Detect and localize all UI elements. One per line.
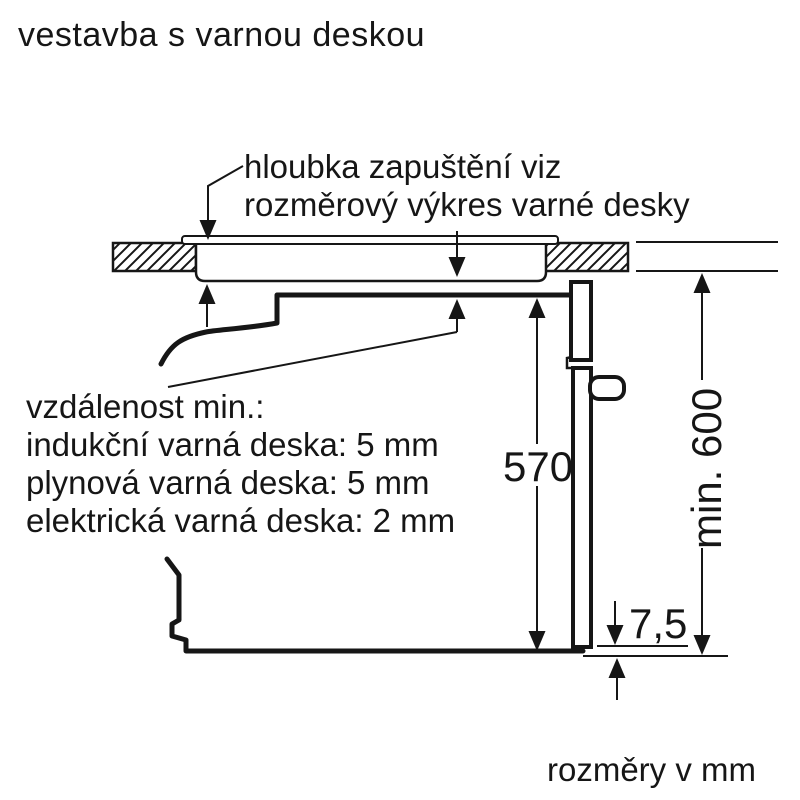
- countertop-left-section: [113, 243, 196, 271]
- hob-recess-note-line2: rozměrový výkres varné desky: [244, 186, 690, 224]
- arrow-down-570: [529, 631, 546, 651]
- leader-clearance-note: [168, 332, 457, 387]
- arrow-up-570: [529, 298, 546, 318]
- oven-bottom-outline: [167, 559, 583, 651]
- hob-recess-note-line1: hloubka zapuštění viz: [244, 148, 690, 186]
- oven-control-knob-icon: [590, 377, 624, 399]
- hob-top-frame: [182, 236, 558, 244]
- hob-recess-note: hloubka zapuštění viz rozměrový výkres v…: [244, 148, 690, 224]
- arrow-up-oven-top: [449, 299, 466, 319]
- arrow-down-75: [607, 625, 624, 645]
- hob-body: [196, 243, 546, 281]
- clearance-note-electric: elektrická varná deska: 2 mm: [26, 502, 455, 540]
- clearance-note-gas: plynová varná deska: 5 mm: [26, 464, 455, 502]
- clearance-note-induction: indukční varná deska: 5 mm: [26, 426, 455, 464]
- dimension-niche-height: min. 600: [683, 388, 731, 549]
- dimension-door-gap: 7,5: [629, 600, 687, 648]
- units-note: rozměry v mm: [547, 751, 756, 789]
- clearance-note: vzdálenost min.: indukční varná deska: 5…: [26, 388, 455, 540]
- leader-hob-note: [208, 166, 243, 222]
- installation-diagram-page: vestavba s varnou deskou hloubka zapuště…: [0, 0, 800, 800]
- oven-door: [573, 368, 591, 647]
- dimension-oven-height: 570: [503, 443, 573, 491]
- oven-top-outline: [161, 295, 571, 364]
- arrow-down-600: [694, 635, 711, 655]
- countertop-right-extension: [636, 242, 778, 271]
- page-title: vestavba s varnou deskou: [18, 16, 425, 55]
- arrow-up-75: [609, 658, 626, 678]
- arrow-up-600: [694, 273, 711, 293]
- arrow-up-hob-underside: [199, 284, 216, 304]
- clearance-note-heading: vzdálenost min.:: [26, 388, 455, 426]
- oven-front-frame: [571, 282, 591, 360]
- countertop-right-section: [545, 243, 628, 271]
